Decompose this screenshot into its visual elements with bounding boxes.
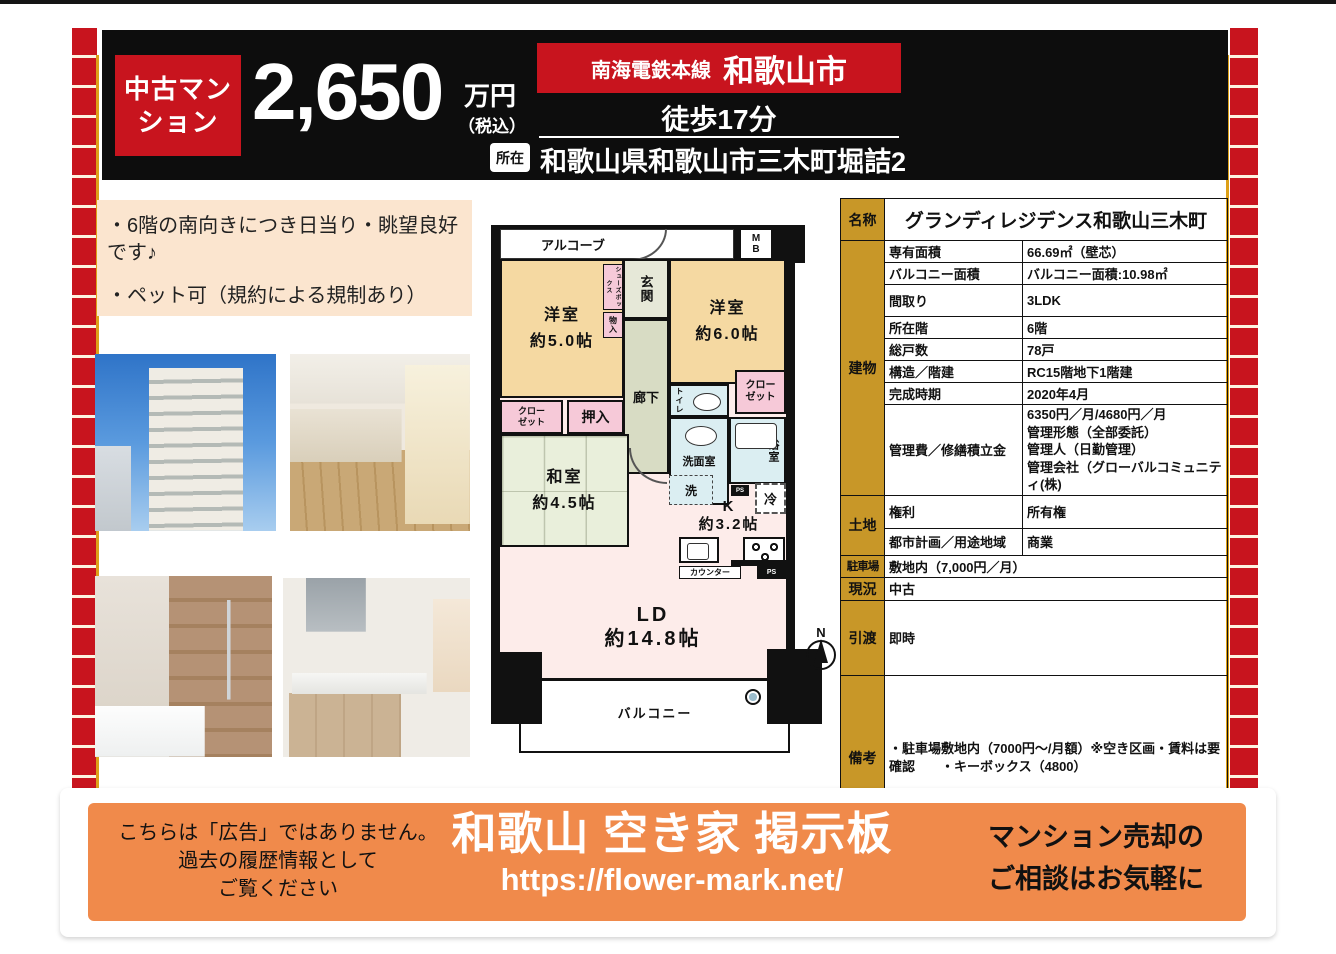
spec-row-value: 66.69㎡（壁芯） [1023,241,1228,263]
floorplan-storage: 物入 [603,312,623,338]
balcony-drain-icon [745,689,761,705]
floorplan-pipe-space-2: PS [757,566,786,579]
spec-handover-label: 引渡 [841,600,885,675]
photo-building-exterior [95,354,276,531]
floorplan-wall [491,652,542,724]
floorplan-ld-label: LD 約14.8帖 [578,604,728,650]
floorplan-wall [786,225,795,654]
property-address: 和歌山県和歌山市三木町堀詰2 [540,140,906,179]
window-line [542,678,768,681]
floorplan-washroom-label: 洗面室 [683,453,716,469]
floorplan-closet-right: クロー ゼット [735,370,786,414]
sink-basin-icon [687,543,709,560]
floorplan-closet-left: クロー ゼット [500,400,563,434]
spec-row-value: 78戸 [1023,339,1228,361]
compass-north-label: N [805,625,837,640]
compass-circle [806,640,836,670]
spec-row-label: 管理費／修繕積立金 [885,405,1023,496]
spec-row-value: 商業 [1023,528,1228,555]
train-line-name: 南海電鉄本線 [591,54,711,83]
spec-name-label: 名称 [841,199,885,241]
property-spec-table: 名称 グランディレジデンス和歌山三木町 建物 専有面積 66.69㎡（壁芯） バ… [840,198,1228,841]
spec-row-label: 間取り [885,285,1023,317]
floorplan-bathroom: 浴室 [729,417,786,484]
bathtub-icon [735,423,777,449]
spec-row-label: 権利 [885,495,1023,528]
floorplan-entrance: 玄関 [623,259,669,319]
spec-parking-label: 駐車場 [841,555,885,577]
photo-bathroom [95,576,272,757]
footer-banner: こちらは「広告」ではありません。 過去の履歴情報として ご覧ください 和歌山 空… [88,803,1246,921]
spec-row-value: 6階 [1023,317,1228,339]
floorplan-kitchen-label: K 約3.2帖 [681,498,777,534]
spec-row-value: バルコニー面積:10.98㎡ [1023,263,1228,285]
spec-row-label: 完成時期 [885,383,1023,405]
spec-row-value: 6350円／月/4680円／月 管理形態（全部委託） 管理人（日勤管理） 管理会… [1023,405,1228,496]
spec-row-label: 都市計画／用途地域 [885,528,1023,555]
spec-land-group-label: 土地 [841,495,885,555]
floorplan-balcony: バルコニー [542,682,768,724]
decorative-border-right [1230,28,1258,790]
price-value: 2,650 [252,48,442,136]
description-box: ・6階の南向きにつき日当り・眺望良好です♪ ・ペット可（規約による規制あり） [97,200,472,316]
walk-time: 徒歩17分 [537,98,901,138]
floorplan-oshiire: 押入 [567,400,624,434]
flyer-page: 中古マン ション 2,650 万円 （税込） 南海電鉄本線 和歌山市 徒歩17分… [0,0,1336,954]
kitchen-sink-icon [679,537,719,563]
spec-row-value: 3LDK [1023,285,1228,317]
header-divider [539,136,899,138]
balcony-railing [519,722,790,753]
price-tax-note: （税込） [458,112,526,137]
floorplan-wall [491,225,500,682]
spec-parking-value: 敷地内（7,000円／月） [885,555,1228,577]
spec-row-label: 構造／階建 [885,361,1023,383]
spec-row-value: 所有権 [1023,495,1228,528]
footer-band: こちらは「広告」ではありません。 過去の履歴情報として ご覧ください 和歌山 空… [60,788,1276,937]
spec-row-label: 専有面積 [885,241,1023,263]
spec-row-value: 2020年4月 [1023,383,1228,405]
train-line-banner: 南海電鉄本線 和歌山市 [537,43,901,93]
footer-cta: マンション売却の ご相談はお気軽に [961,817,1231,901]
spec-building-group-label: 建物 [841,241,885,496]
station-city: 和歌山市 [723,46,847,91]
description-line-2: ・ペット可（規約による規制あり） [107,283,462,310]
spec-row-label: バルコニー面積 [885,263,1023,285]
price-unit: 万円 [464,76,516,113]
spec-status-label: 現況 [841,577,885,600]
spec-row-label: 所在階 [885,317,1023,339]
floorplan-shoe-box: シューズボックス [603,264,623,310]
spec-status-value: 中古 [885,577,1228,600]
floorplan-pipe-space: PS [731,485,749,496]
site-title: 和歌山 空き家 掲示板 [392,807,952,861]
floorplan-meter-box: M B [739,228,773,260]
floorplan-counter-label: カウンター [679,566,741,579]
photo-living-room [290,354,470,531]
header-bar: 中古マン ション 2,650 万円 （税込） 南海電鉄本線 和歌山市 徒歩17分… [102,30,1228,180]
floorplan-japanese-room: 和室 約4.5帖 [500,434,629,547]
description-line-1: ・6階の南向きにつき日当り・眺望良好です♪ [107,213,462,267]
north-compass-icon: N [805,625,837,681]
compass-needle [814,639,828,663]
site-url: https://flower-mark.net/ [392,861,952,898]
floorplan-toilet-label: トイレ [674,387,685,414]
property-type-badge: 中古マン ション [115,55,241,156]
floorplan-western-room-6: 洋室 約6.0帖 [669,259,786,384]
spec-handover-value: 即時 [885,600,1228,675]
toilet-icon [693,393,721,411]
photo-kitchen [283,578,470,757]
sink-icon [685,426,717,446]
location-badge: 所在 [490,143,530,172]
floorplan-toilet: トイレ [669,384,729,417]
top-border-line [0,0,1336,4]
floor-plan: アルコーブ M B 洋室 約5.0帖 洋室 約6.0帖 玄関 シューズボックス … [483,212,839,770]
site-block: 和歌山 空き家 掲示板 https://flower-mark.net/ [392,807,952,898]
decorative-border-left [72,28,97,790]
spec-row-value: RC15階地下1階建 [1023,361,1228,383]
floorplan-alcove: アルコーブ [500,229,734,259]
spec-row-label: 総戸数 [885,339,1023,361]
spec-name-value: グランディレジデンス和歌山三木町 [885,199,1228,241]
